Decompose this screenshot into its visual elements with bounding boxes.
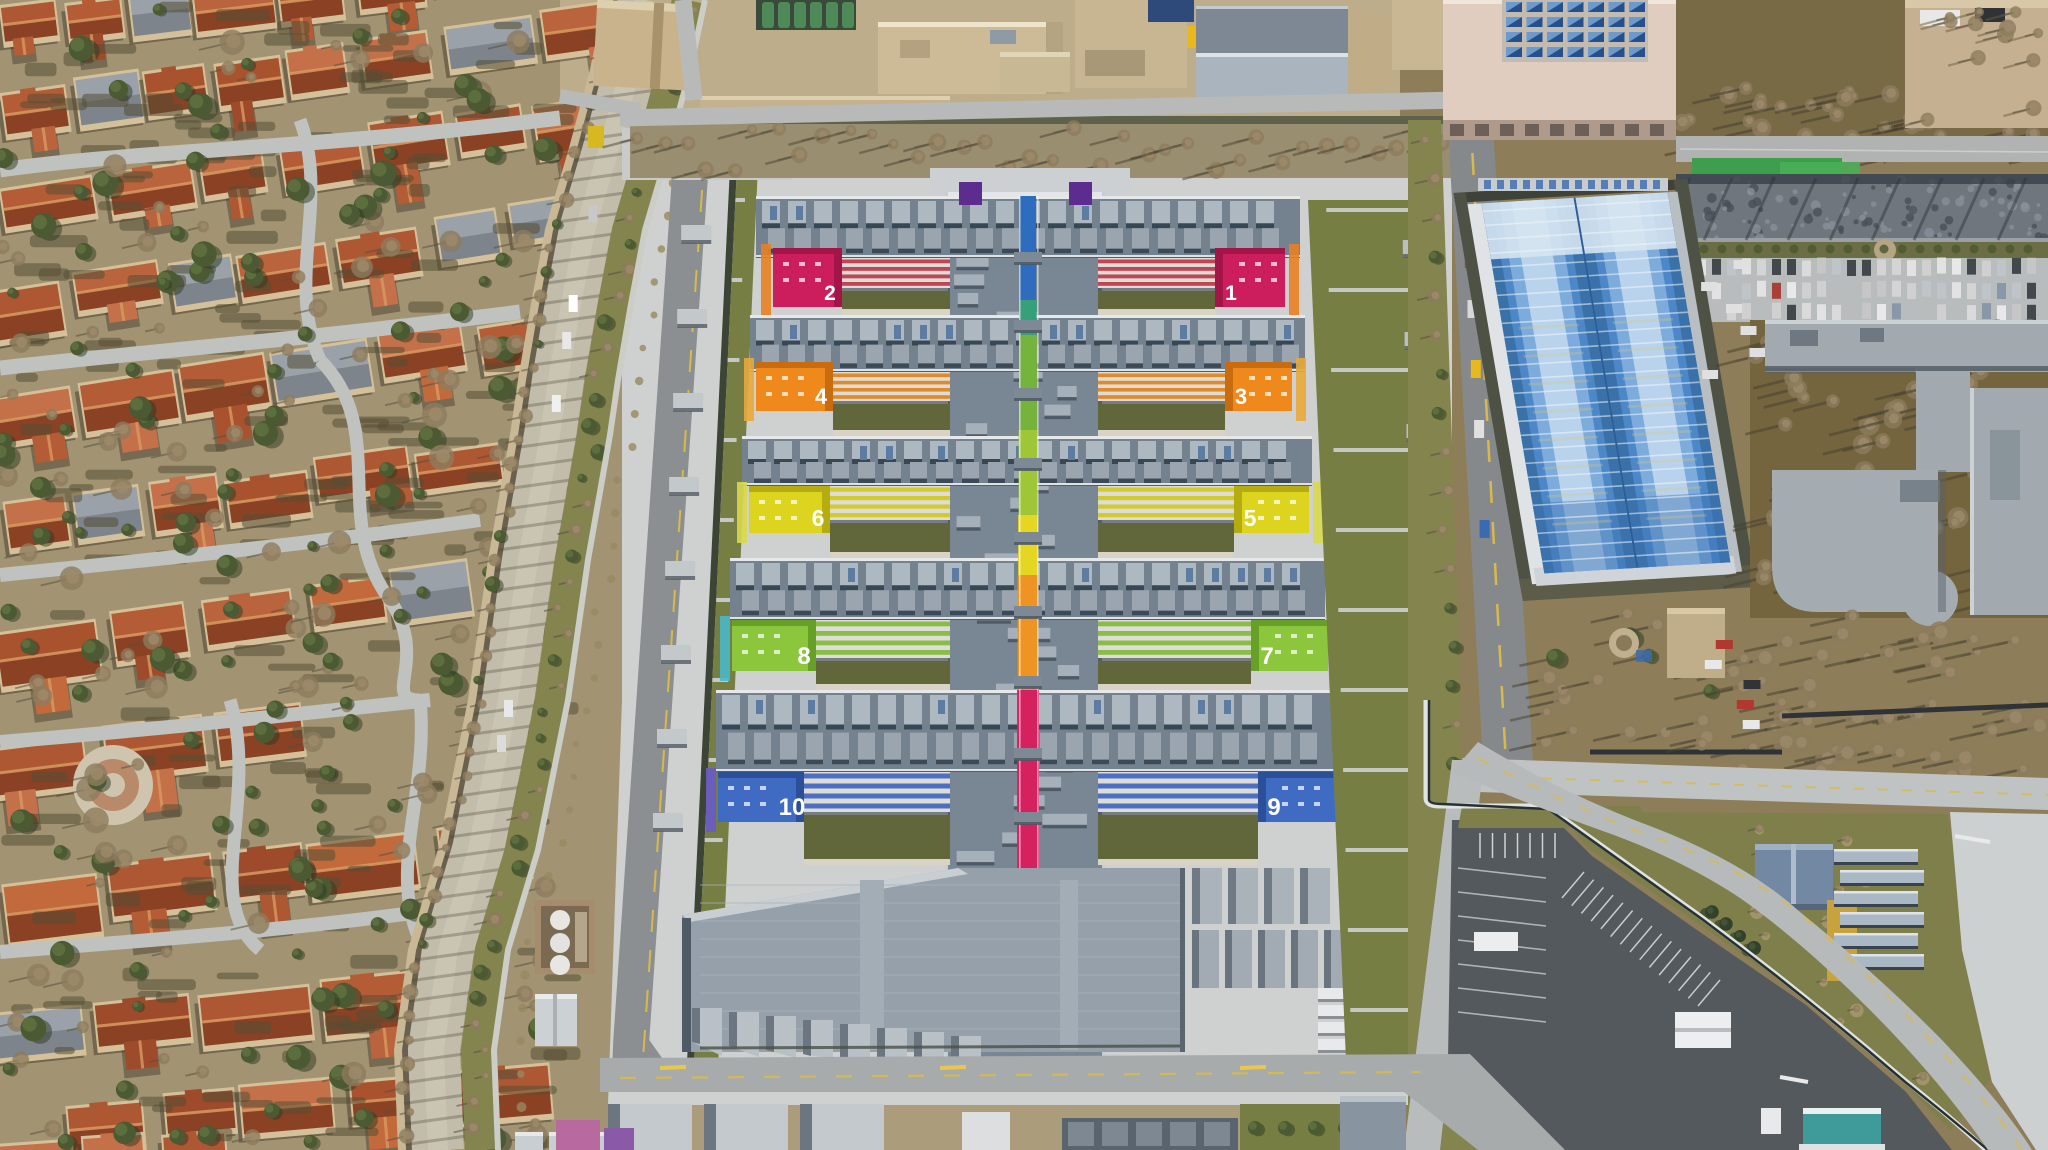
svg-text:5: 5 <box>1244 505 1257 531</box>
svg-text:1: 1 <box>1225 282 1237 305</box>
svg-text:7: 7 <box>1260 643 1273 670</box>
svg-text:8: 8 <box>797 643 810 670</box>
svg-text:6: 6 <box>812 505 825 531</box>
svg-text:10: 10 <box>779 794 806 821</box>
svg-text:9: 9 <box>1267 794 1280 821</box>
svg-text:2: 2 <box>824 282 836 305</box>
svg-text:3: 3 <box>1235 384 1247 409</box>
svg-text:4: 4 <box>815 384 828 409</box>
